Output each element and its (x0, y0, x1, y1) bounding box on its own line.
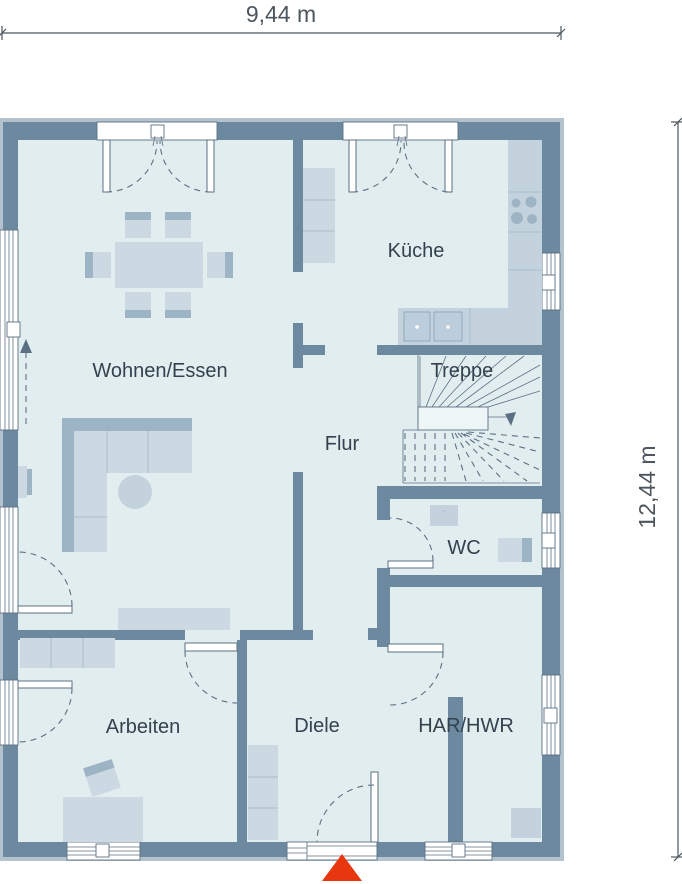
window-kitchen (542, 253, 560, 310)
kitchen-counter-bottom (398, 308, 542, 345)
sideboard (118, 608, 230, 630)
window-wc (542, 513, 560, 568)
washer-icon (511, 808, 541, 838)
dining-table (115, 242, 203, 288)
coffee-table (118, 475, 152, 509)
window-har (542, 675, 560, 755)
dining-chair (125, 292, 151, 318)
window-handle (7, 322, 20, 337)
toilet-icon (430, 505, 458, 526)
wc-sink-icon (498, 538, 532, 562)
room-label-wc: WC (447, 537, 480, 559)
window-handle (544, 708, 557, 723)
office-cabinets (20, 638, 115, 668)
window-handle (542, 533, 555, 548)
desk (63, 797, 143, 842)
room-label-wohnen-essen: Wohnen/Essen (92, 360, 227, 382)
room-label-kueche: Küche (388, 240, 445, 262)
room-label-flur: Flur (325, 433, 360, 455)
kitchen-counter-right (508, 140, 542, 310)
door-handle (151, 125, 164, 138)
dining-chair (125, 212, 151, 238)
window-handle (96, 844, 109, 857)
kitchen-tall-cabinets (303, 168, 335, 263)
tv-board (18, 466, 32, 498)
dimension-width-label: 9,44 m (246, 1, 316, 27)
dining-chair (165, 292, 191, 318)
room-label-diele: Diele (294, 715, 340, 737)
window-office (67, 842, 140, 860)
dining-chair (165, 212, 191, 238)
room-label-treppe: Treppe (431, 360, 494, 382)
dimension-height-label: 12,44 m (634, 445, 660, 528)
dining-chair (207, 252, 233, 278)
dimension-right: 12,44 m (634, 118, 682, 861)
dimension-top: 9,44 m (0, 1, 565, 40)
floor-plan-drawing: 9,44 m 12,44 m (0, 0, 682, 884)
room-label-har-hwr: HAR/HWR (418, 715, 514, 737)
wardrobe (248, 745, 278, 840)
floor-plan: 9,44 m 12,44 m (0, 0, 682, 884)
window-living (0, 230, 20, 430)
window-har-bottom (425, 842, 492, 860)
window-handle (542, 275, 555, 290)
dining-chair (85, 252, 111, 278)
window-handle (452, 844, 465, 857)
room-label-arbeiten: Arbeiten (106, 716, 181, 738)
